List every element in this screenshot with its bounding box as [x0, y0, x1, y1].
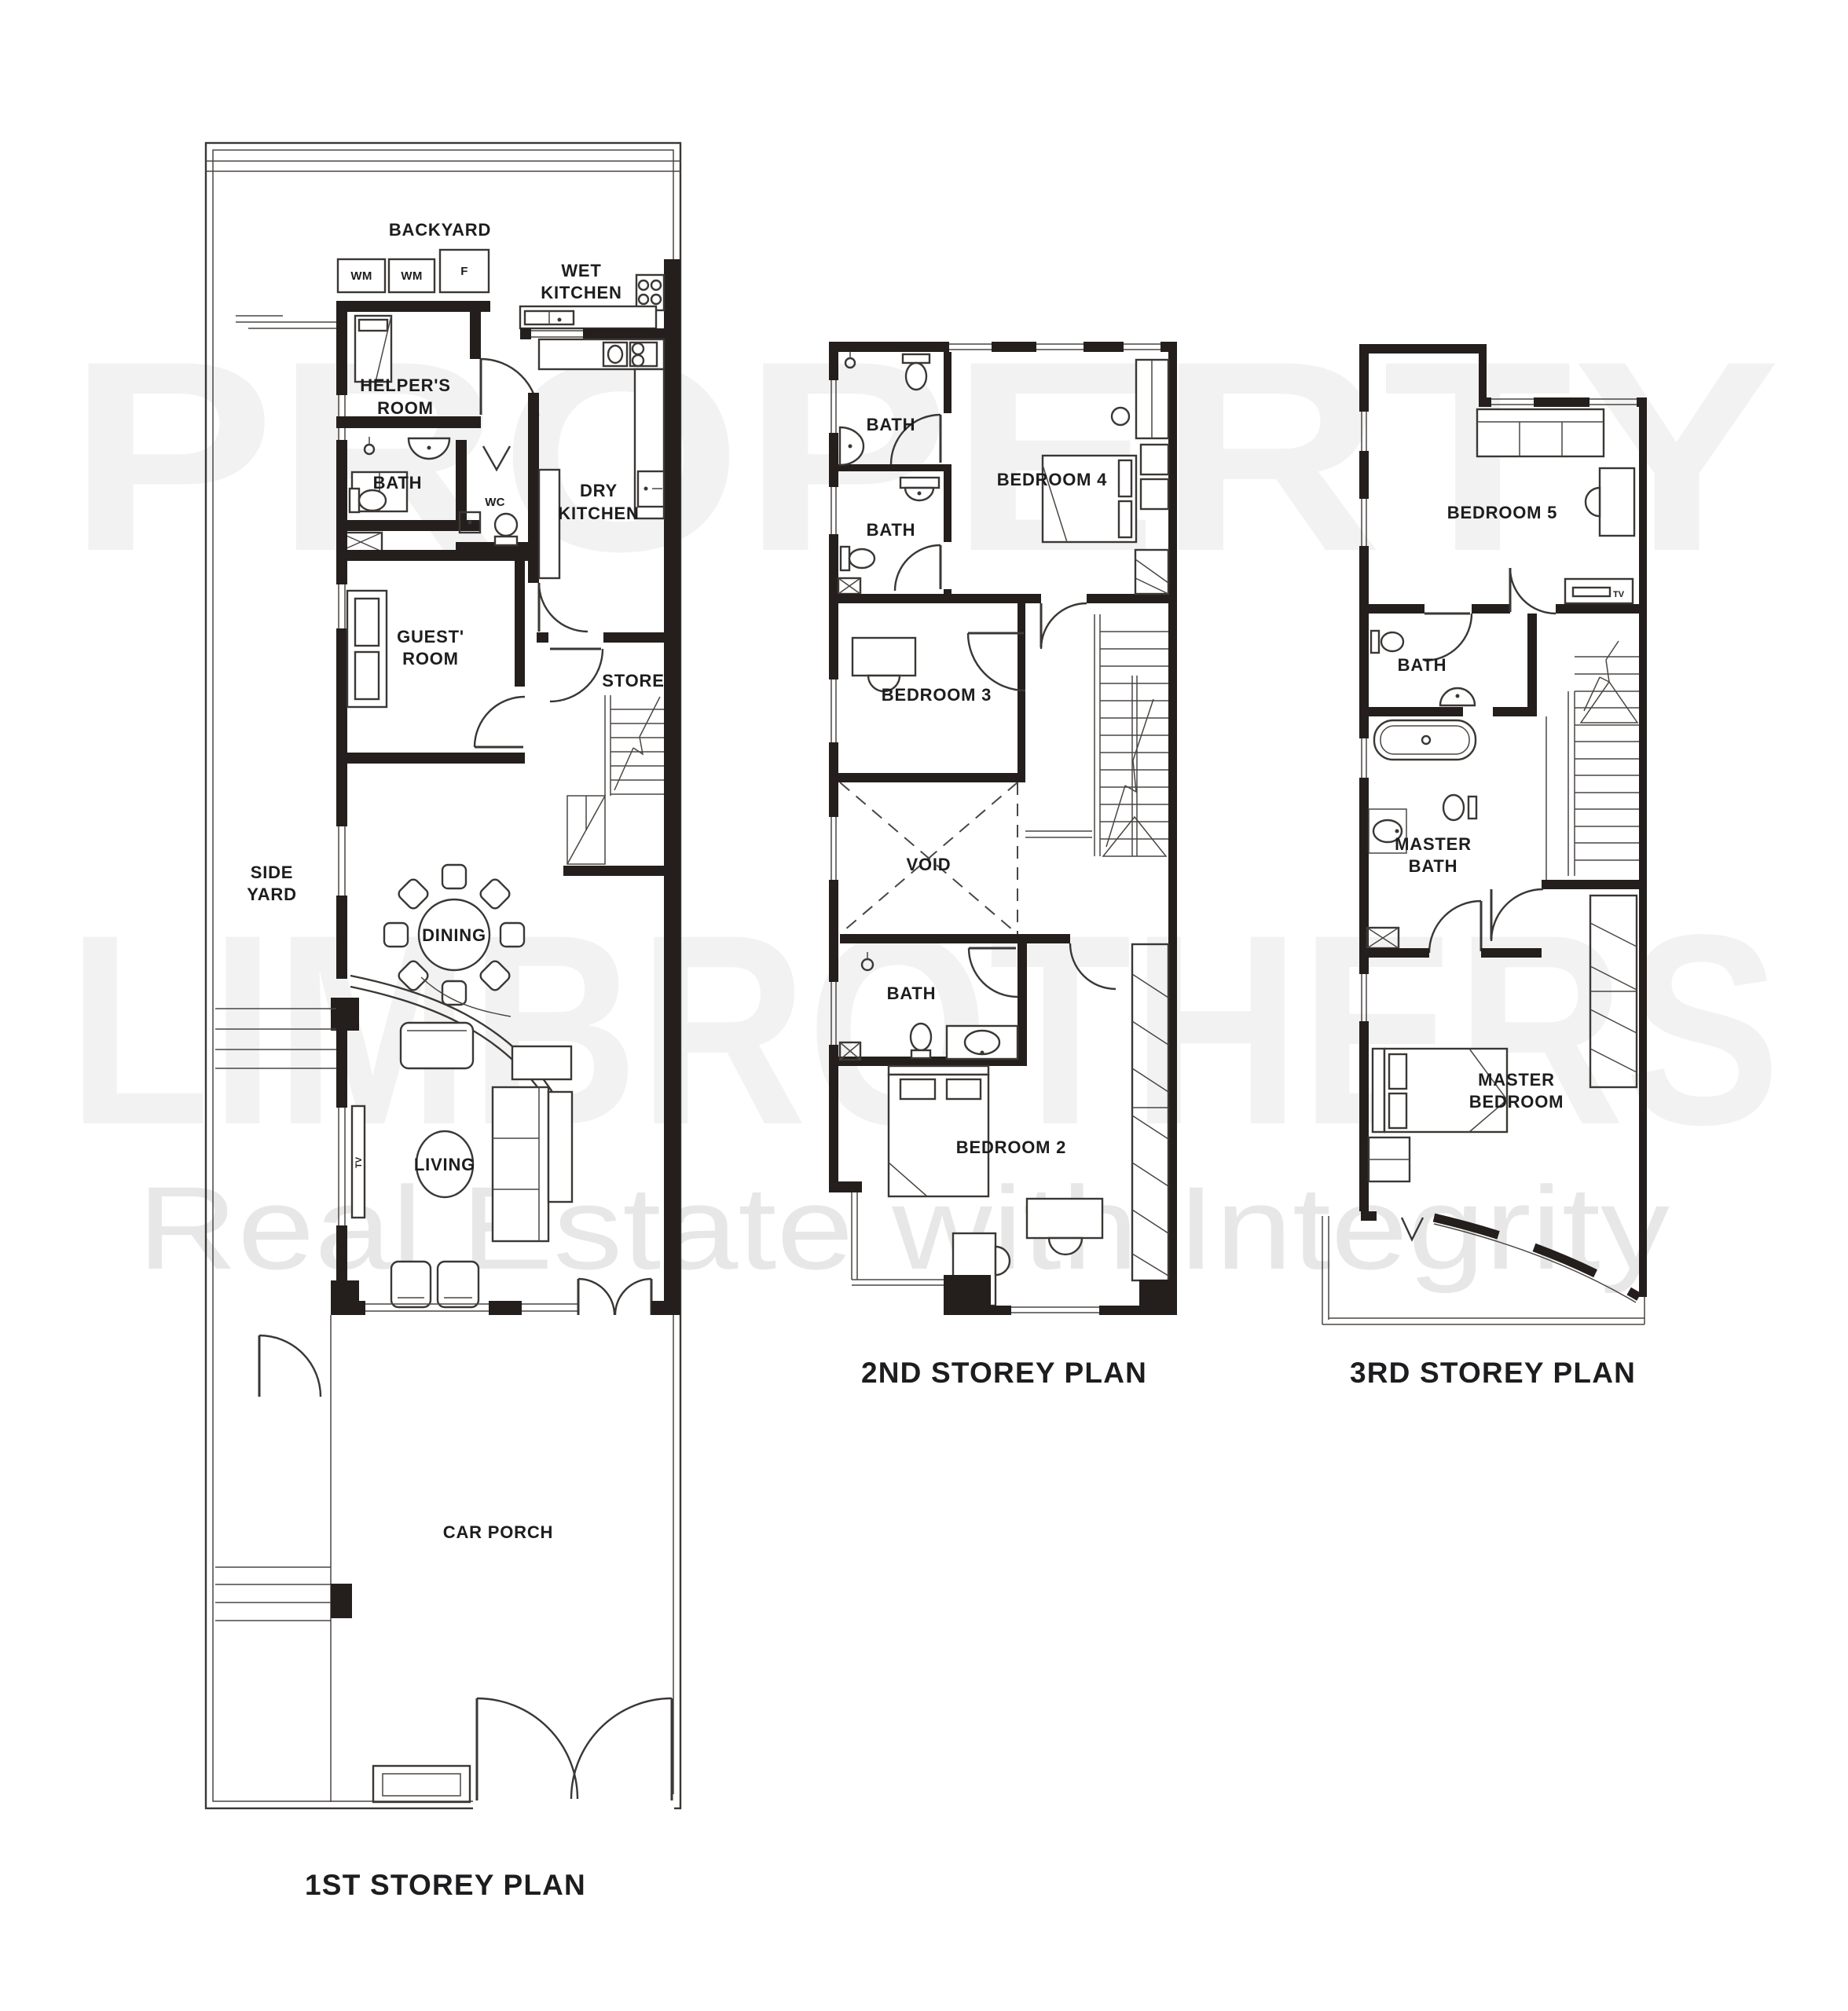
wet-kitchen-label: WET	[561, 261, 601, 280]
bedroom5-label: BEDROOM 5	[1447, 503, 1557, 522]
planter	[373, 1766, 470, 1802]
floorplan-page: PROPERTY LIMBROTHERS Real Estate with In…	[0, 0, 1848, 2011]
bath-3f: BATH	[1369, 614, 1537, 716]
tv-label-3f: TV	[1613, 590, 1625, 599]
toilet-icon	[495, 514, 517, 536]
toilet-icon	[903, 354, 929, 363]
bedroom3: BEDROOM 3	[829, 603, 1025, 782]
main-gate	[477, 1698, 672, 1800]
helpers-room-label: HELPER'S	[360, 375, 451, 395]
master-bath-label: MASTER	[1395, 834, 1472, 854]
sofa-icon	[1477, 409, 1604, 456]
toilet-icon	[1443, 795, 1464, 820]
stairs2	[1094, 614, 1168, 856]
first-storey-title: 1ST STOREY PLAN	[305, 1869, 586, 1901]
bath-3f-label: BATH	[1398, 655, 1447, 675]
bath-mid-label: BATH	[867, 520, 916, 540]
bath-label: BATH	[373, 473, 423, 493]
car-porch-label: CAR PORCH	[443, 1522, 553, 1542]
toilet-icon	[841, 547, 849, 570]
master-bedroom-label: BEDROOM	[1469, 1092, 1564, 1112]
side-yard-label: YARD	[247, 885, 297, 904]
wardrobe-icon	[347, 591, 387, 707]
bedroom2-label: BEDROOM 2	[956, 1137, 1066, 1157]
side-yard-label: SIDE	[251, 863, 294, 882]
nightstand	[1141, 445, 1168, 474]
bed-headboard	[889, 1066, 988, 1075]
desk-icon	[1027, 1199, 1102, 1238]
toilet-icon	[1371, 631, 1379, 653]
car-porch: CAR PORCH	[215, 1315, 674, 1811]
toilet-icon	[911, 1024, 931, 1050]
guest-room-label: GUEST'	[397, 627, 464, 647]
backyard-label: BACKYARD	[389, 220, 491, 240]
wm-left-label: WM	[350, 269, 372, 283]
armchair-icon	[401, 1023, 473, 1068]
nightstand	[1141, 479, 1168, 509]
guest-room-label: ROOM	[402, 649, 459, 669]
master-bath-label: BATH	[1409, 856, 1458, 876]
bedroom3-label: BEDROOM 3	[882, 685, 992, 705]
living-label: LIVING	[414, 1155, 475, 1174]
bed-headboard	[1373, 1049, 1384, 1132]
wm-right-label: WM	[401, 269, 422, 283]
tall-cabinet	[539, 470, 559, 578]
stove-icon	[636, 275, 664, 310]
wet-kitchen-label: KITCHEN	[541, 283, 621, 302]
side-table	[512, 1046, 571, 1079]
bed-icon	[355, 316, 391, 382]
helpers-room-label: ROOM	[377, 398, 434, 418]
dining-label: DINING	[422, 925, 486, 945]
chair-icon	[438, 1262, 478, 1307]
tv-label: TV	[354, 1156, 364, 1168]
bedroom4-label: BEDROOM 4	[997, 470, 1107, 489]
store-label: STORE	[602, 671, 664, 690]
sink-icon	[900, 478, 939, 488]
desk-icon	[852, 638, 915, 676]
second-storey-title: 2ND STOREY PLAN	[861, 1357, 1147, 1389]
wc-label: WC	[485, 496, 505, 509]
sofa-chaise	[548, 1092, 572, 1202]
stool	[1112, 408, 1129, 425]
master-bedroom-label: MASTER	[1478, 1070, 1555, 1090]
stairs3	[1542, 641, 1639, 889]
void-label: VOID	[907, 855, 951, 874]
dry-kitchen-label: DRY	[580, 481, 618, 500]
bath-top-label: BATH	[867, 415, 916, 434]
fridge-label: F	[460, 265, 467, 278]
sofa-icon	[493, 1087, 548, 1241]
toilet-icon	[350, 489, 359, 512]
dry-kitchen-label: KITCHEN	[558, 504, 639, 523]
chair-icon	[391, 1262, 431, 1307]
third-storey-title: 3RD STOREY PLAN	[1350, 1357, 1636, 1389]
desk-icon	[1600, 468, 1634, 536]
bath-low-label: BATH	[887, 984, 937, 1003]
store-stairs: STORE	[537, 632, 670, 876]
floorplan-canvas: PROPERTY LIMBROTHERS Real Estate with In…	[0, 0, 1848, 2011]
